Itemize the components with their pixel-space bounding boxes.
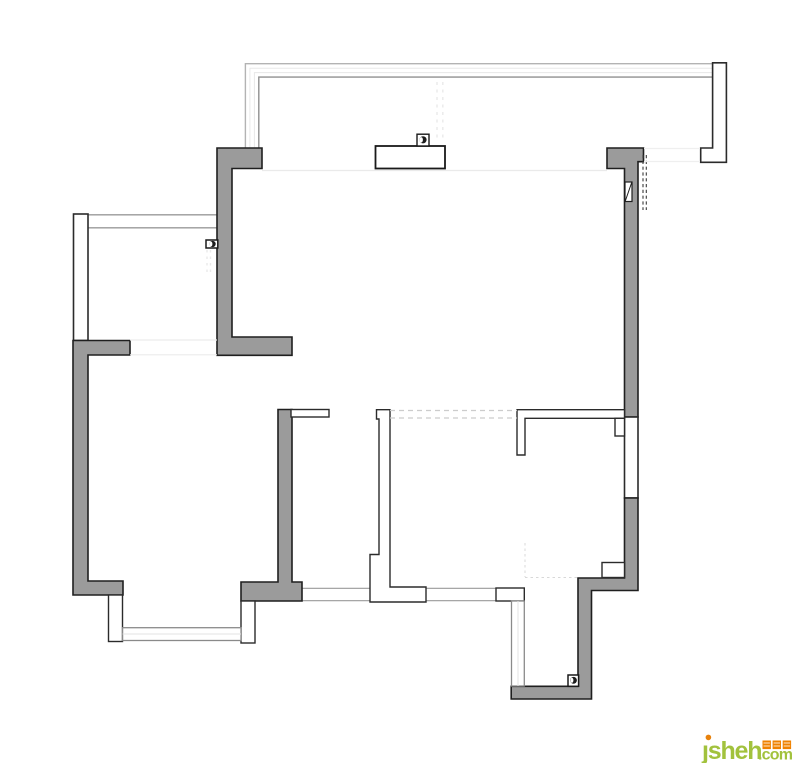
svg-text:ȷsheh: ȷsheh bbox=[701, 737, 761, 763]
